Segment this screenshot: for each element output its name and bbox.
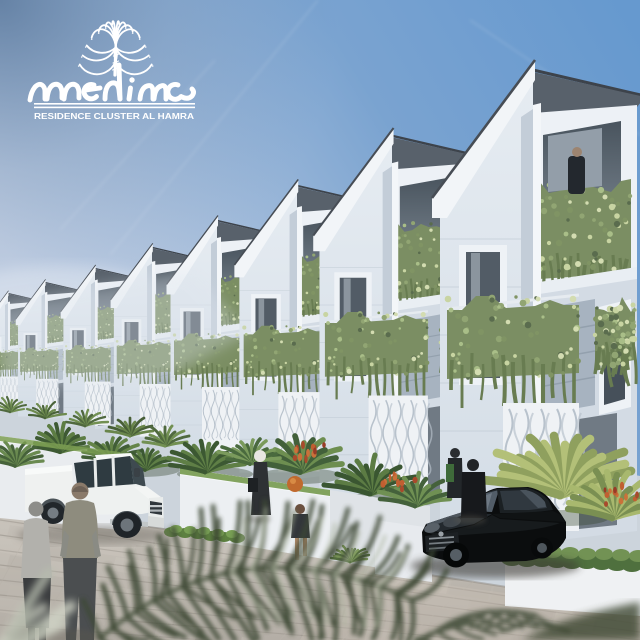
- svg-text:RESIDENCE CLUSTER AL HAMRA: RESIDENCE CLUSTER AL HAMRA: [34, 111, 194, 121]
